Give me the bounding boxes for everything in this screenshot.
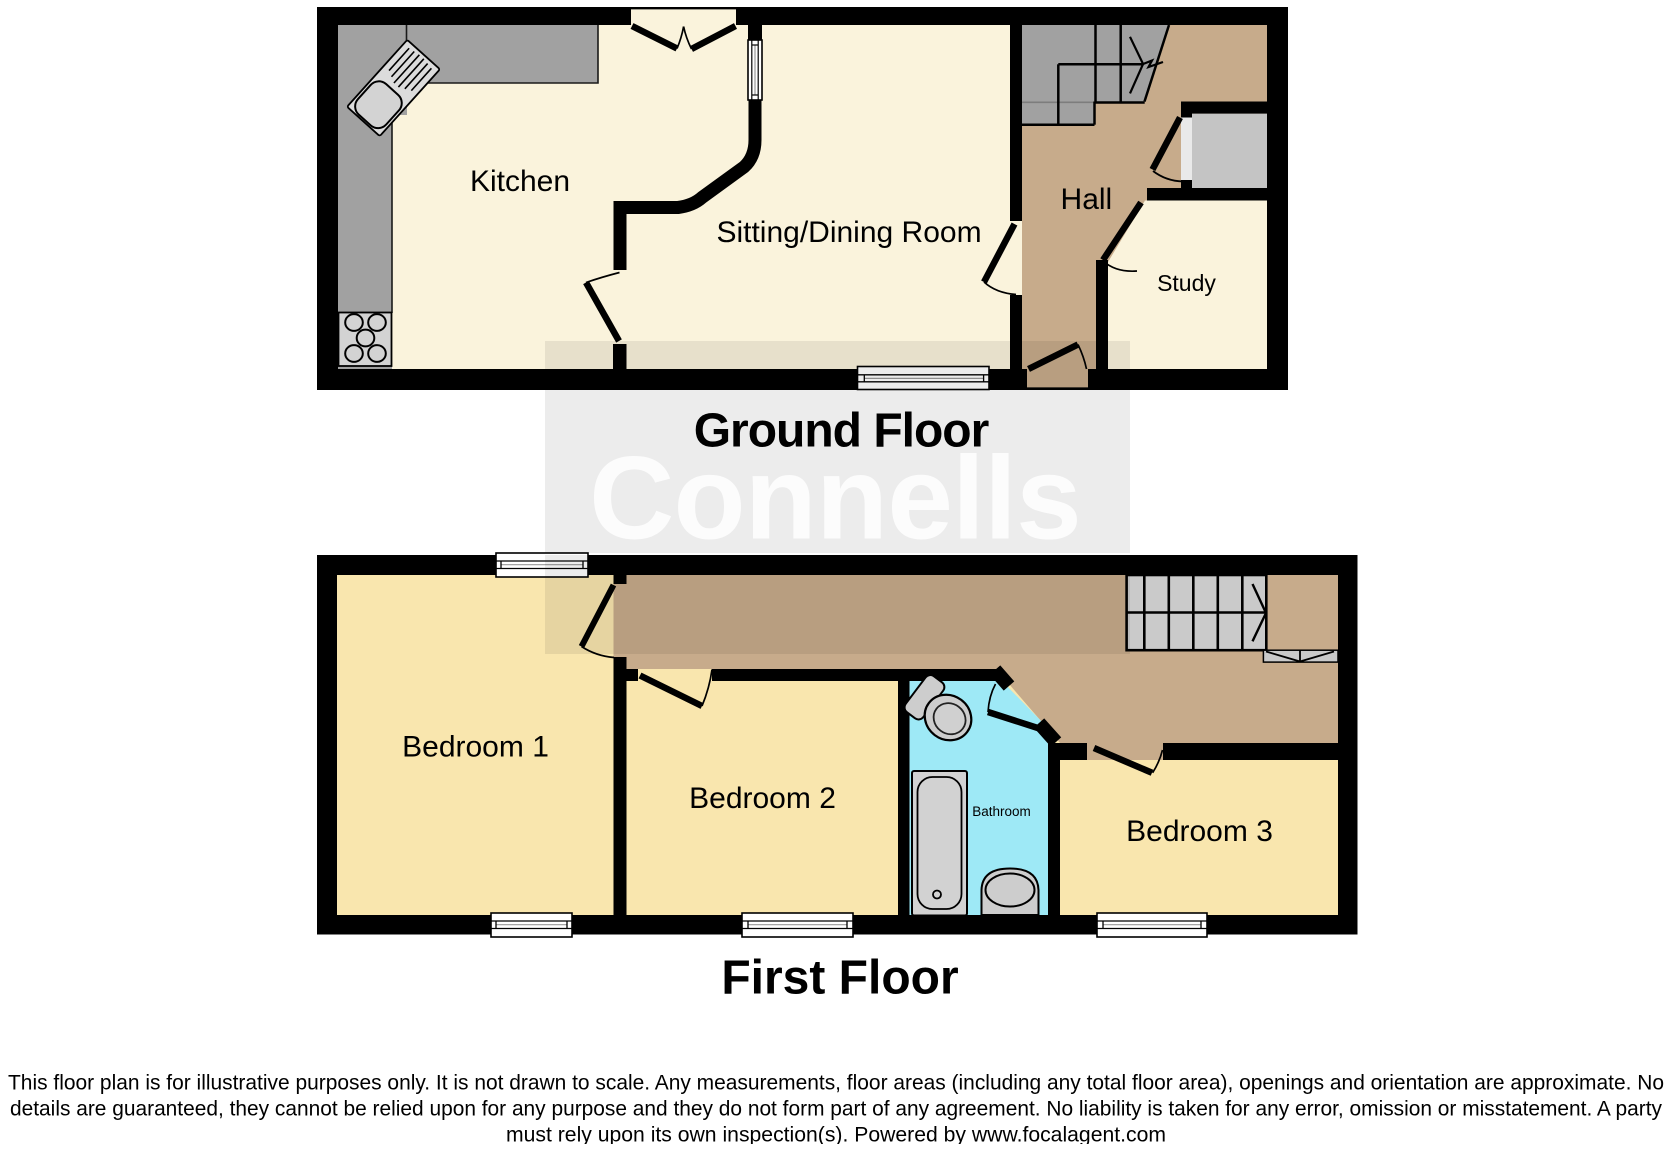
- svg-text:Bathroom: Bathroom: [972, 804, 1031, 819]
- svg-text:Bedroom 1: Bedroom 1: [402, 731, 549, 764]
- svg-text:Ground Floor: Ground Floor: [694, 404, 989, 457]
- svg-text:Hall: Hall: [1061, 183, 1113, 216]
- svg-text:Kitchen: Kitchen: [470, 165, 570, 198]
- svg-text:Bedroom 3: Bedroom 3: [1126, 815, 1273, 848]
- svg-text:must rely upon its own inspect: must rely upon its own inspection(s). Po…: [506, 1123, 1166, 1145]
- svg-text:details are guaranteed, they c: details are guaranteed, they cannot be r…: [10, 1097, 1662, 1121]
- svg-text:Bedroom 2: Bedroom 2: [689, 782, 836, 815]
- svg-text:Sitting/Dining Room: Sitting/Dining Room: [716, 216, 981, 249]
- svg-text:This floor plan is for illustr: This floor plan is for illustrative purp…: [8, 1071, 1664, 1095]
- svg-text:Study: Study: [1157, 270, 1216, 296]
- svg-text:First Floor: First Floor: [721, 952, 958, 1005]
